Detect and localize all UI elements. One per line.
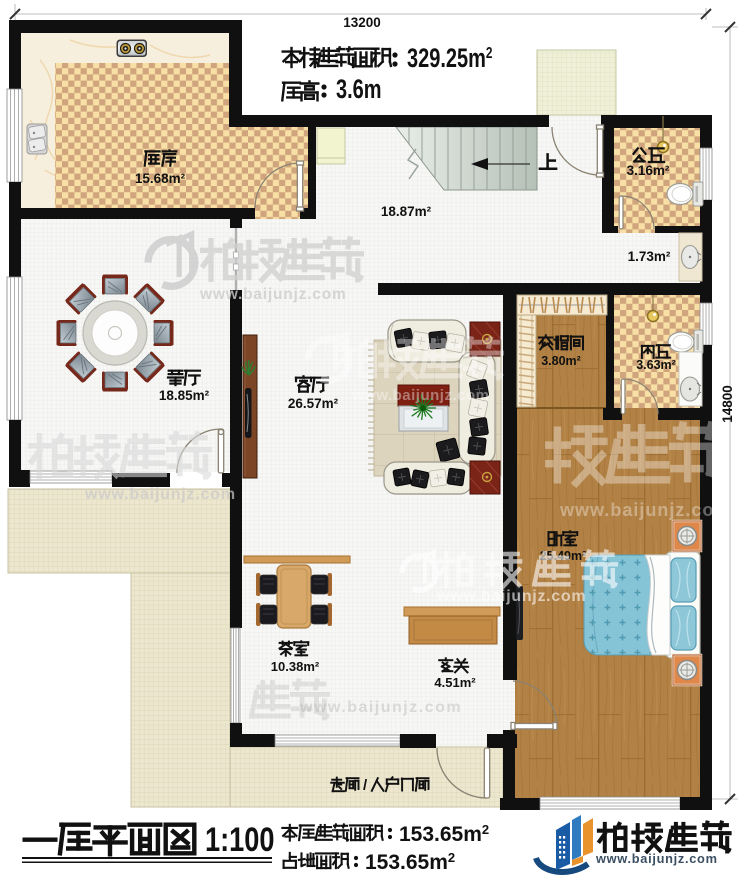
svg-text:153.65m2: 153.65m2 (365, 850, 455, 874)
svg-text:26.57m²: 26.57m² (288, 396, 339, 411)
svg-text:3.63m²: 3.63m² (636, 358, 676, 372)
svg-text:18.87m²: 18.87m² (381, 204, 432, 219)
svg-text:18.85m²: 18.85m² (159, 388, 210, 403)
svg-text:3.80m²: 3.80m² (541, 354, 581, 368)
svg-text:3.6m: 3.6m (336, 74, 382, 105)
svg-text:www.baijunjz.com: www.baijunjz.com (199, 286, 347, 303)
svg-text:14800: 14800 (720, 385, 735, 423)
svg-text:1.73m²: 1.73m² (628, 249, 671, 264)
svg-text:www.baijunjz.com: www.baijunjz.com (84, 486, 236, 503)
svg-text:www.baijunjz.com: www.baijunjz.com (595, 851, 718, 866)
svg-text:www.baijunjz.com: www.baijunjz.com (351, 387, 489, 404)
svg-text:13200: 13200 (343, 15, 381, 30)
svg-text:www.baijunjz.com: www.baijunjz.com (436, 588, 586, 605)
svg-text:www.baijunjz.com: www.baijunjz.com (559, 500, 731, 520)
svg-text:3.16m²: 3.16m² (627, 163, 670, 178)
svg-text:www.baijunjz.com: www.baijunjz.com (299, 699, 462, 716)
svg-text:10.38m²: 10.38m² (271, 659, 320, 674)
svg-text:4.51m²: 4.51m² (434, 675, 476, 690)
svg-text:329.25m2: 329.25m2 (407, 43, 493, 74)
svg-text:15.68m²: 15.68m² (135, 171, 186, 186)
svg-text:1:100: 1:100 (205, 820, 275, 859)
svg-text:153.65m2: 153.65m2 (399, 822, 489, 846)
